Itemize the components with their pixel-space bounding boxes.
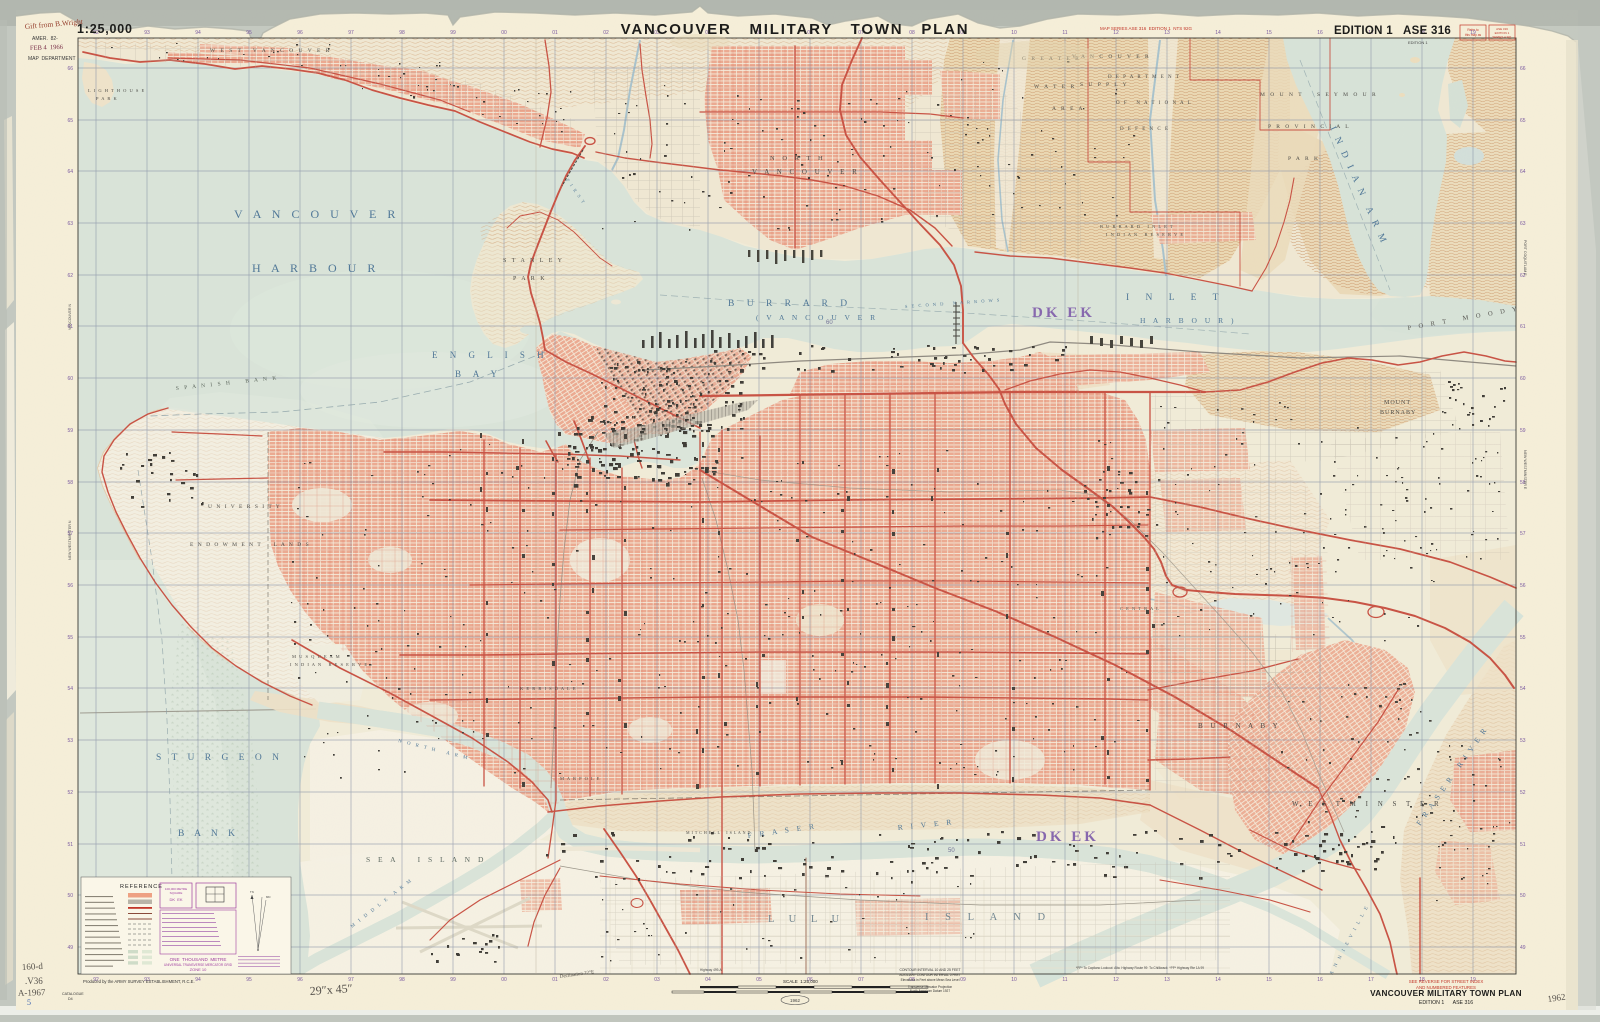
svg-text:Highway 499-A: Highway 499-A xyxy=(700,968,722,972)
svg-text:REFERENCE: REFERENCE xyxy=(120,884,163,890)
svg-text:VANCOUVER N: VANCOUVER N xyxy=(68,304,72,330)
svg-text:54: 54 xyxy=(67,686,73,692)
svg-text:09: 09 xyxy=(960,977,966,983)
svg-text:.V36: .V36 xyxy=(25,976,43,986)
svg-text:16: 16 xyxy=(1317,30,1323,36)
svg-text:66: 66 xyxy=(1520,66,1526,72)
svg-text:98: 98 xyxy=(399,977,405,983)
svg-text:02: 02 xyxy=(603,977,609,983)
svg-text:60: 60 xyxy=(1520,376,1526,382)
svg-text:56: 56 xyxy=(67,583,73,589)
svg-text:50: 50 xyxy=(67,893,73,899)
svg-text:66: 66 xyxy=(67,66,73,72)
svg-text:VANCOUVER MILITARY TOWN: VANCOUVER MILITARY TOWN PLAN xyxy=(621,21,970,38)
svg-text:63: 63 xyxy=(1520,221,1526,227)
svg-text:ONE THOUSAND METRE: ONE THOUSAND METRE xyxy=(170,957,227,962)
svg-text:65: 65 xyxy=(1520,118,1526,124)
svg-text:15: 15 xyxy=(1266,30,1272,36)
svg-text:11: 11 xyxy=(1062,30,1067,36)
svg-text:FEB 4 1966: FEB 4 1966 xyxy=(30,44,64,52)
svg-text:05: 05 xyxy=(756,977,762,983)
svg-text:SCALE 1:25,000: SCALE 1:25,000 xyxy=(783,979,818,984)
svg-text:*PP* To Capilano Lookout Alta: *PP* To Capilano Lookout Alta Highway Ro… xyxy=(1076,966,1204,970)
svg-text:94: 94 xyxy=(195,977,201,983)
svg-text:60: 60 xyxy=(67,376,73,382)
svg-text:99: 99 xyxy=(450,977,456,983)
svg-text:57: 57 xyxy=(1520,531,1526,537)
svg-text:59: 59 xyxy=(1520,428,1526,434)
svg-text:13: 13 xyxy=(1164,977,1170,983)
svg-text:EDITION 1 ASE 316: EDITION 1 ASE 316 xyxy=(1419,1000,1473,1006)
svg-text:EDITION 1 ASE 316: EDITION 1 ASE 316 xyxy=(1334,25,1451,37)
svg-text:CATALOGUE: CATALOGUE xyxy=(62,992,84,996)
svg-text:29″x 45″: 29″x 45″ xyxy=(309,981,353,998)
svg-text:56: 56 xyxy=(1520,583,1526,589)
svg-text:04: 04 xyxy=(705,977,711,983)
svg-text:16: 16 xyxy=(1317,977,1323,983)
svg-text:MAP SERIES ASE 316 EDITION 1: MAP SERIES ASE 316 EDITION 1 NTS 92G xyxy=(1100,26,1192,31)
svg-text:Produced by the ARMY SURVEY ES: Produced by the ARMY SURVEY ESTABLISHMEN… xyxy=(83,979,195,984)
svg-text:50: 50 xyxy=(1520,893,1526,899)
svg-text:96: 96 xyxy=(297,977,303,983)
svg-text:62: 62 xyxy=(67,273,73,279)
svg-text:58: 58 xyxy=(67,480,73,486)
svg-text:15: 15 xyxy=(1266,977,1272,983)
svg-text:53: 53 xyxy=(1520,738,1526,744)
svg-text:14: 14 xyxy=(1215,977,1221,983)
svg-text:MN: MN xyxy=(266,895,270,899)
svg-text:SQUARE: SQUARE xyxy=(170,891,183,895)
svg-text:94: 94 xyxy=(195,30,201,36)
svg-text:51: 51 xyxy=(1520,842,1526,848)
svg-text:64: 64 xyxy=(1520,169,1526,175)
svg-text:51: 51 xyxy=(67,842,73,848)
svg-text:11: 11 xyxy=(1062,977,1067,983)
svg-text:DK EK: DK EK xyxy=(169,897,182,902)
svg-text:AMER. 82-: AMER. 82- xyxy=(32,36,58,42)
svg-text:A-1967: A-1967 xyxy=(18,987,46,998)
svg-text:49: 49 xyxy=(1520,945,1526,951)
svg-text:99: 99 xyxy=(450,30,456,36)
svg-text:19: 19 xyxy=(1470,30,1476,36)
svg-text:55: 55 xyxy=(67,635,73,641)
svg-text:Elevations in Feet above Mean: Elevations in Feet above Mean Sea Level xyxy=(901,978,960,982)
svg-text:95: 95 xyxy=(246,977,252,983)
svg-text:NEW WESTMINSTER E: NEW WESTMINSTER E xyxy=(1523,450,1527,490)
svg-text:PORT COQUITLAM E: PORT COQUITLAM E xyxy=(1523,240,1527,276)
svg-text:D4: D4 xyxy=(68,997,73,1001)
svg-text:ZONE 10: ZONE 10 xyxy=(190,967,207,972)
svg-text:07: 07 xyxy=(858,977,864,983)
svg-text:MAP DEPARTMENT: MAP DEPARTMENT xyxy=(28,56,76,62)
svg-text:17: 17 xyxy=(1368,977,1374,983)
svg-text:EDITION 1: EDITION 1 xyxy=(1408,40,1428,45)
svg-text:1:25,000: 1:25,000 xyxy=(77,22,133,36)
svg-text:01: 01 xyxy=(552,977,558,983)
svg-text:12: 12 xyxy=(1113,977,1119,983)
svg-text:52: 52 xyxy=(67,790,73,796)
svg-text:95: 95 xyxy=(246,30,252,36)
svg-text:CONTOUR INTERVAL 10 AND 25 FEE: CONTOUR INTERVAL 10 AND 25 FEET xyxy=(899,968,960,972)
svg-text:SEE REVERSE FOR STREET INDEX: SEE REVERSE FOR STREET INDEX xyxy=(1409,979,1484,984)
svg-text:00: 00 xyxy=(501,977,507,983)
svg-text:03: 03 xyxy=(654,977,660,983)
svg-text:TN: TN xyxy=(250,890,254,894)
svg-text:00: 00 xyxy=(501,30,507,36)
svg-text:52: 52 xyxy=(1520,790,1526,796)
svg-text:65: 65 xyxy=(67,118,73,124)
svg-text:59: 59 xyxy=(67,428,73,434)
svg-text:5: 5 xyxy=(27,998,31,1007)
svg-text:55: 55 xyxy=(1520,635,1526,641)
svg-text:NEW WESTMINSTER N: NEW WESTMINSTER N xyxy=(68,520,72,560)
svg-text:54: 54 xyxy=(1520,686,1526,692)
svg-text:93: 93 xyxy=(144,30,150,36)
svg-text:10: 10 xyxy=(1011,30,1017,36)
svg-text:98: 98 xyxy=(399,30,405,36)
svg-text:VANCOUVER MILITARY TOWN PLAN: VANCOUVER MILITARY TOWN PLAN xyxy=(1370,989,1522,998)
svg-text:North American Datum 1927: North American Datum 1927 xyxy=(910,989,950,993)
svg-text:01: 01 xyxy=(552,30,558,36)
svg-text:61: 61 xyxy=(1520,324,1526,330)
svg-text:SERIES A 901: SERIES A 901 xyxy=(1492,35,1512,39)
svg-text:53: 53 xyxy=(67,738,73,744)
svg-text:63: 63 xyxy=(67,221,73,227)
svg-text:97: 97 xyxy=(348,30,354,36)
svg-text:AUXILIARY CONTOUR INTERVAL 5 F: AUXILIARY CONTOUR INTERVAL 5 FEET xyxy=(899,973,960,977)
svg-text:14: 14 xyxy=(1215,30,1221,36)
svg-text:160-d: 160-d xyxy=(22,961,44,972)
svg-text:10: 10 xyxy=(1011,977,1017,983)
svg-text:49: 49 xyxy=(67,945,73,951)
svg-text:96: 96 xyxy=(297,30,303,36)
svg-text:1962: 1962 xyxy=(790,998,801,1003)
svg-text:02: 02 xyxy=(603,30,609,36)
svg-text:64: 64 xyxy=(67,169,73,175)
